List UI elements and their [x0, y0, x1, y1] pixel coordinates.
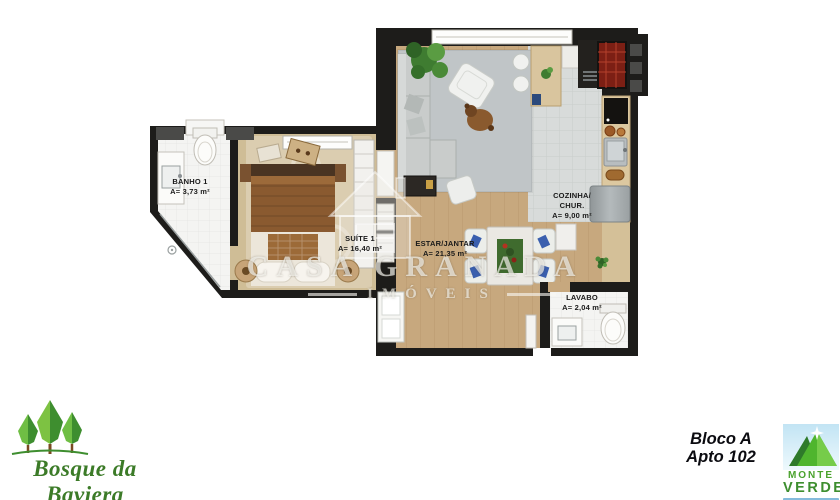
- builder-logo: MONTE VERDE: [783, 424, 839, 500]
- room-area: A= 2,04 m²: [562, 303, 602, 313]
- watermark-subtitle: IMÓVEIS: [367, 286, 497, 303]
- room-name: BANHO 1: [170, 177, 210, 187]
- unit-info: Bloco A Apto 102: [660, 430, 782, 467]
- trees-icon: [0, 396, 100, 458]
- development-name: Bosque da Baviera: [0, 456, 170, 500]
- room-label-cozinha: COZINHA/ CHUR. A= 9,00 m²: [552, 191, 592, 221]
- room-name: SUÍTE 1: [338, 234, 382, 244]
- watermark-rule-left: [308, 293, 357, 296]
- development-logo: Bosque da Baviera: [0, 396, 170, 500]
- room-name: ESTAR/JANTAR: [415, 239, 474, 249]
- grill-nook: [598, 42, 642, 92]
- watermark-rule-right: [507, 293, 556, 296]
- floor-plan-image: BANHO 1 A= 3,73 m² SUÍTE 1 A= 16,40 m² E…: [0, 0, 840, 500]
- room-area: A= 3,73 m²: [170, 187, 210, 197]
- builder-name-word2: VERDE: [783, 481, 839, 496]
- entry-door-leaf: [526, 315, 536, 348]
- room-label-banho-1: BANHO 1 A= 3,73 m²: [170, 177, 210, 197]
- media-unit: [404, 176, 436, 196]
- room-name: COZINHA/: [552, 191, 592, 201]
- watermark-subtitle-row: IMÓVEIS: [308, 286, 556, 303]
- mountain-icon: [783, 424, 839, 470]
- room-area: A= 9,00 m²: [552, 211, 592, 221]
- unit-apartment: Apto 102: [660, 448, 782, 466]
- unit-block: Bloco A: [660, 430, 782, 448]
- room-name: LAVABO: [562, 293, 602, 303]
- watermark-brand: CASA GRANADA: [247, 250, 584, 284]
- room-label-lavabo: LAVABO A= 2,04 m²: [562, 293, 602, 313]
- room-name: CHUR.: [552, 201, 592, 211]
